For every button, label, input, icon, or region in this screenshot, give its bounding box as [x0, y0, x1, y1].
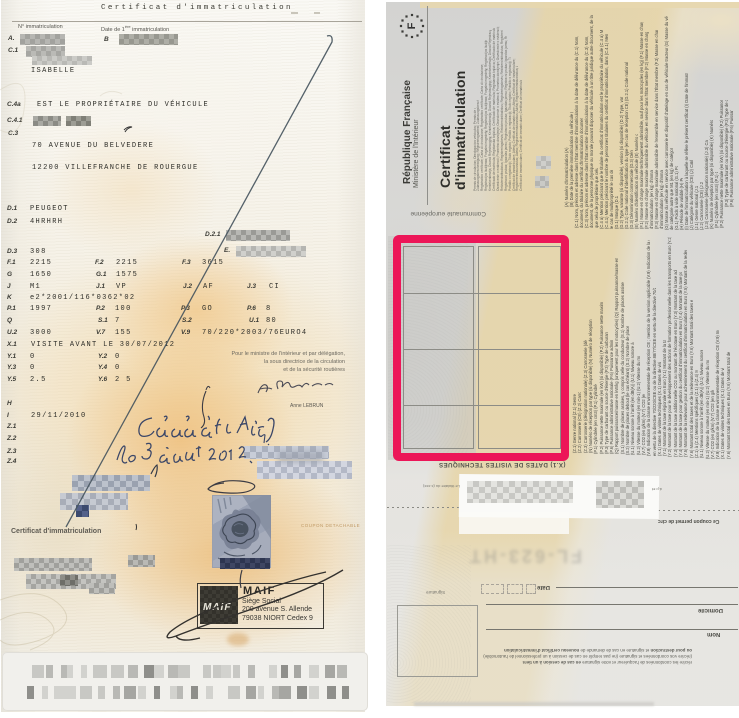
- svg-text:F: F: [406, 22, 418, 29]
